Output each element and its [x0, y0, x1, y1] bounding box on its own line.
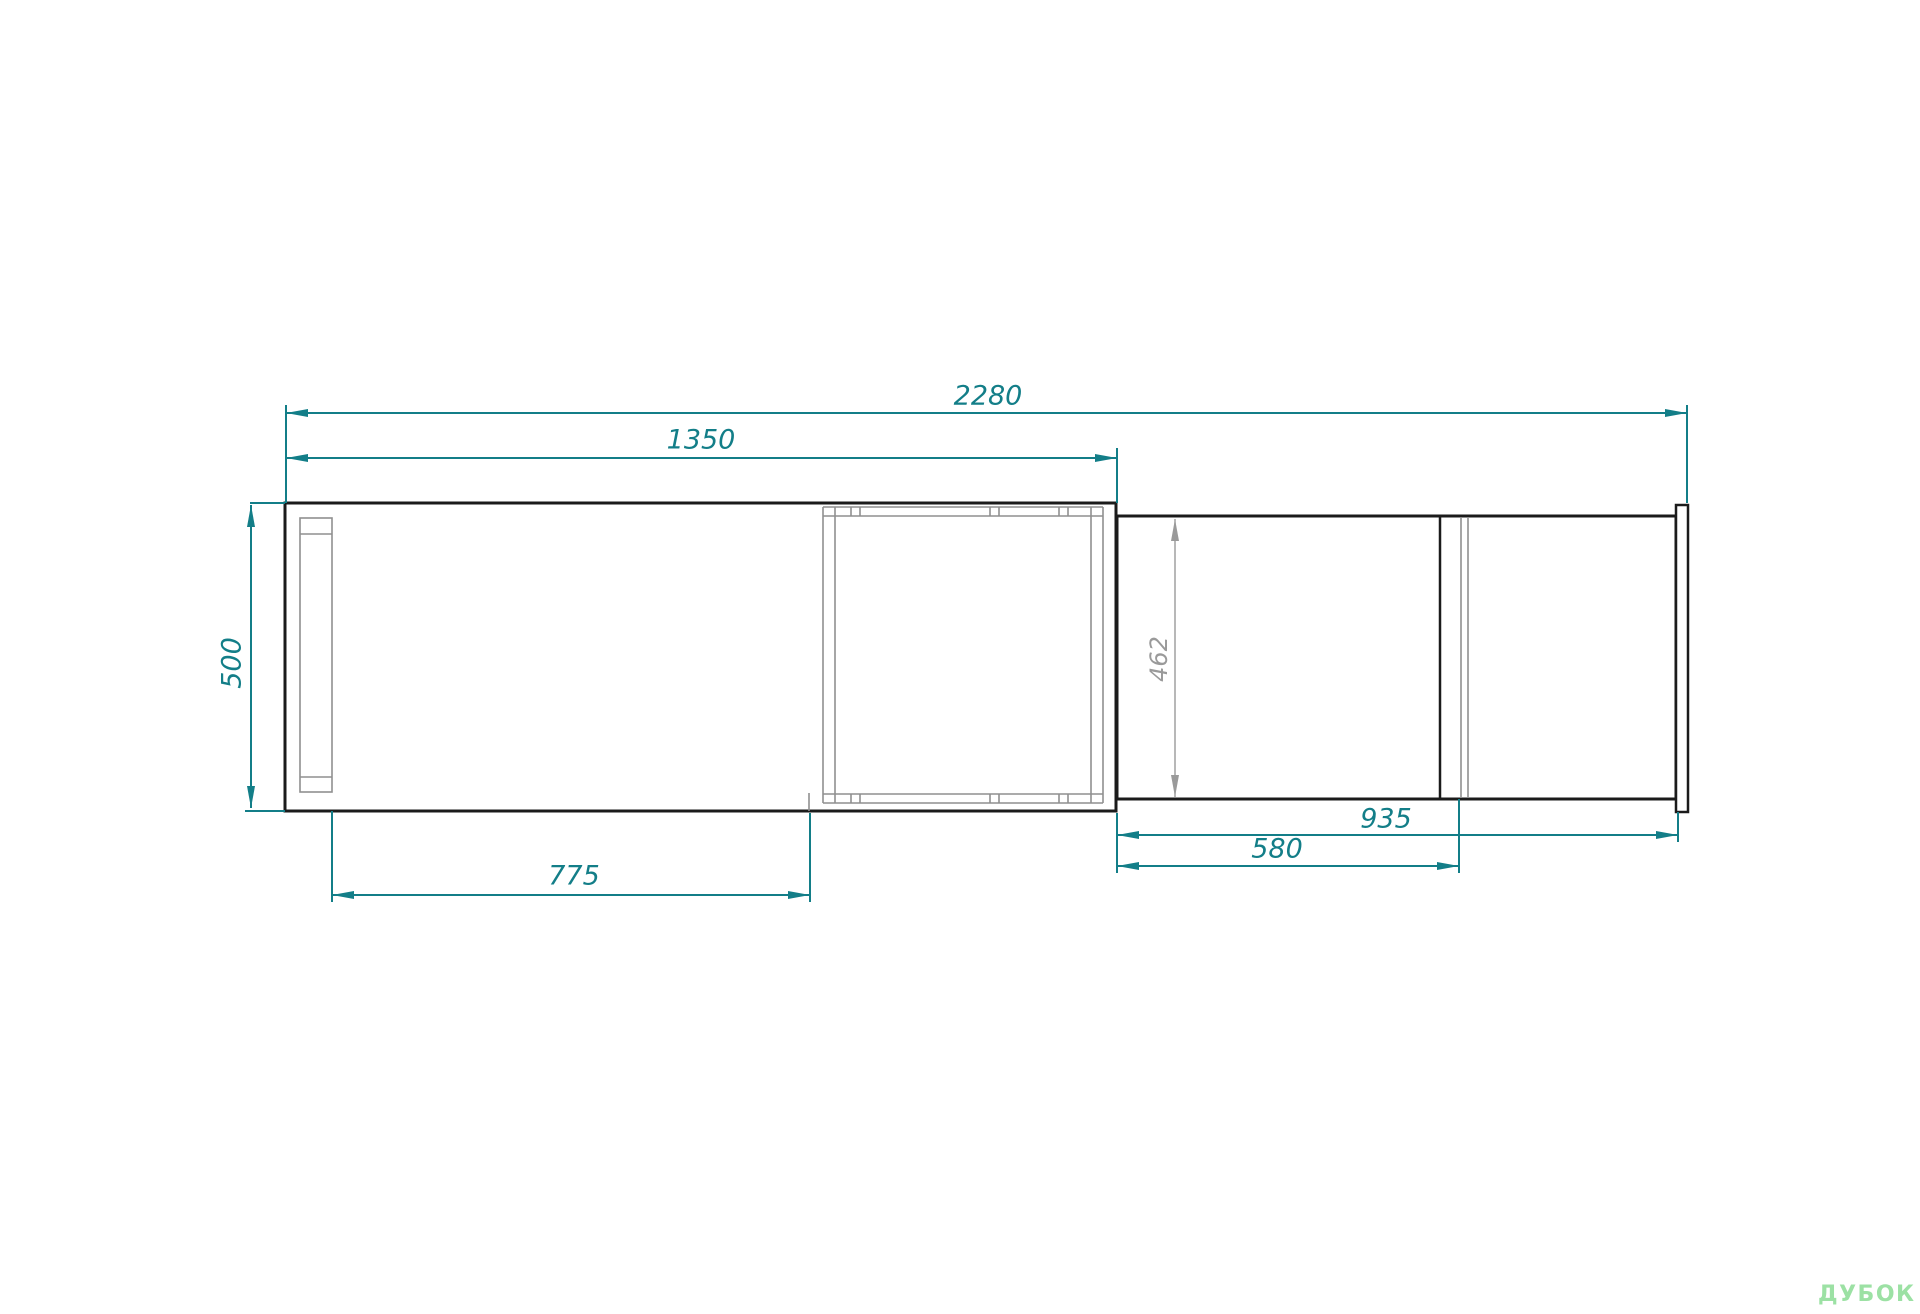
dim-label-total-width: 2280	[954, 381, 1023, 412]
dim-500-arrow-up	[247, 505, 255, 527]
left-cabinet-outline	[285, 503, 1116, 811]
brand-watermark-text: ДУБОК	[1818, 1282, 1916, 1307]
drawing-linework	[0, 0, 1920, 1314]
dim-2280-arrow-left	[286, 409, 308, 417]
brand-watermark: ДУБОК	[1818, 1282, 1920, 1307]
dim-1350-arrow-right	[1095, 454, 1117, 462]
dimension-lines	[245, 405, 1687, 902]
dim-label-right-section-width: 935	[1360, 804, 1412, 835]
dim-775-arrow-right	[788, 891, 810, 899]
dim-label-right-inner-width: 580	[1251, 834, 1303, 865]
dim-2280-arrow-right	[1665, 409, 1687, 417]
dim-935-arrow-right	[1656, 831, 1678, 839]
dim-462-arrow-up	[1171, 519, 1179, 541]
cabinet-outlines	[285, 503, 1688, 812]
dim-label-right-section-depth: 462	[1145, 636, 1173, 682]
dim-580-arrow-right	[1437, 862, 1459, 870]
left-strip-outline	[300, 518, 332, 792]
dim-label-left-section-width: 1350	[667, 425, 736, 456]
right-cabinet-outline	[1117, 516, 1676, 799]
dim-label-left-section-depth: 500	[217, 637, 248, 689]
dimension-arrowheads	[247, 409, 1687, 899]
dim-label-left-inner-width: 775	[548, 861, 600, 892]
dim-462-arrow-down	[1171, 775, 1179, 797]
right-end-panel	[1676, 505, 1688, 812]
technical-drawing-canvas: 2280 1350 500 775 462 935 580 ДУБОК	[0, 0, 1920, 1314]
dim-935-arrow-left	[1117, 831, 1139, 839]
dim-775-arrow-left	[332, 891, 354, 899]
dim-500-arrow-down	[247, 786, 255, 808]
dim-1350-arrow-left	[286, 454, 308, 462]
dim-580-arrow-left	[1117, 862, 1139, 870]
interior-details	[300, 507, 1468, 811]
pullout-table	[823, 507, 1103, 803]
